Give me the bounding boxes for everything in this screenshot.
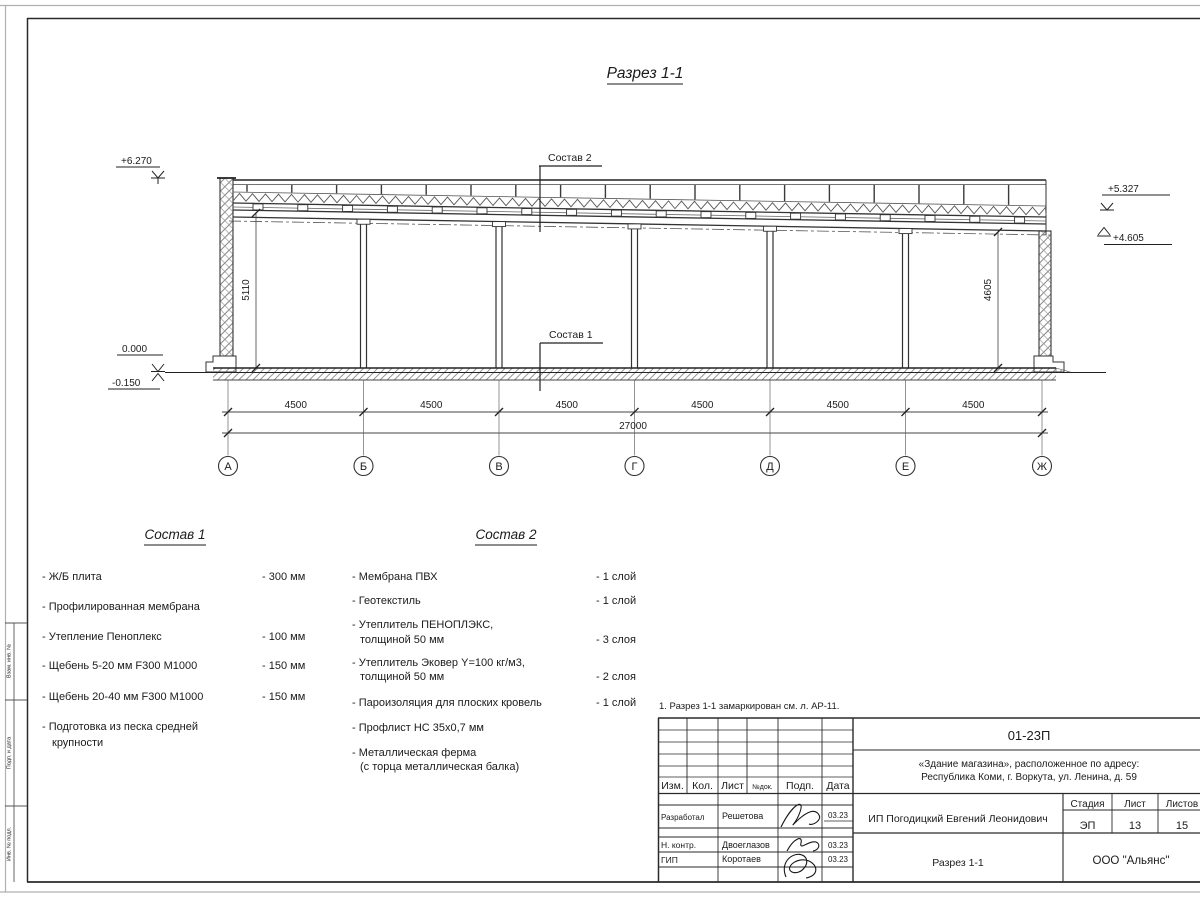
sostav2-item: - Утеплитель Эковер Y=100 кг/м3, (352, 657, 525, 669)
floor-slab (213, 368, 1056, 380)
role-gip: ГИП (661, 855, 678, 865)
col-izm: Изм. (661, 780, 684, 792)
dimension-rows (222, 380, 1048, 456)
sostav2-item: - Утеплитель ПЕНОПЛЭКС, (352, 619, 493, 631)
col-list: Лист (721, 780, 744, 792)
name-developed: Решетова (722, 811, 763, 821)
sostav2-value: - 2 слоя (596, 671, 636, 683)
axis-label-d: Д (766, 461, 774, 473)
object-address-line2: Республика Коми, г. Воркута, ул. Ленина,… (921, 771, 1137, 783)
sheet-number: 13 (1129, 820, 1141, 832)
sostav2-title: Состав 2 (476, 527, 537, 542)
sostav1-value: - 300 мм (262, 571, 305, 583)
date-ncontrol: 03.23 (828, 841, 849, 850)
axis-label-e: Е (902, 461, 909, 473)
axis-label-g: Г (632, 461, 638, 473)
axis-label-zh: Ж (1037, 461, 1047, 473)
elev-right-lower: +4.605 (1113, 233, 1144, 244)
col-data: Дата (826, 780, 849, 792)
vertical-dimensions (252, 209, 1002, 372)
sostav2-value: - 3 слоя (596, 634, 636, 646)
sheet-label: Лист (1124, 799, 1146, 810)
col-podp: Подп. (786, 780, 814, 792)
section-drawing-canvas: Взам. инв. № Подп. и дата Инв. № подл. Р… (0, 0, 1200, 900)
sostav1-value: - 150 мм (262, 691, 305, 703)
sostav1-value: - 150 мм (262, 660, 305, 672)
drawing-title: Разрез 1-1 (607, 65, 684, 82)
doc-number: 01-23П (1008, 728, 1051, 743)
drawing-sheet: Взам. инв. № Подп. и дата Инв. № подл. Р… (0, 0, 1200, 900)
client-name: ИП Погодицкий Евгений Леонидович (868, 813, 1047, 825)
axis-label-v: В (495, 461, 502, 473)
col-ndok: №док. (752, 784, 773, 791)
sostav1-item: - Профилированная мембрана (42, 601, 201, 613)
sostav2-item-line2: толщиной 50 мм (360, 671, 444, 683)
sostav2-item: - Профлист НС 35х0,7 мм (352, 722, 484, 734)
dim-height-right: 4605 (983, 278, 994, 301)
elev-right-upper: +5.327 (1108, 184, 1139, 195)
bay-dim-5: 4500 (827, 400, 850, 411)
sostav1-item: - Ж/Б плита (42, 571, 103, 583)
callout-floor-label: Состав 1 (549, 329, 593, 341)
elev-top-left: +6.270 (121, 156, 152, 167)
role-ncontrol: Н. контр. (661, 840, 696, 850)
sostav2-item: - Геотекстиль (352, 595, 421, 607)
sostav1-value: - 100 мм (262, 631, 305, 643)
bay-dim-1: 4500 (285, 400, 308, 411)
sostav2-item-line2: (с торца металлическая балка) (360, 761, 519, 773)
titleblock-drawing-name: Разрез 1-1 (932, 857, 984, 869)
left-wall (220, 178, 233, 372)
sostav1-item: - Щебень 20-40 мм F300 М1000 (42, 691, 203, 703)
signature-developed (781, 804, 820, 827)
name-ncontrol: Двоеглазов (722, 840, 770, 850)
date-developed: 03.23 (828, 811, 849, 820)
stage-value: ЭП (1080, 820, 1096, 832)
elevation-marks (108, 167, 1172, 389)
elev-zero: 0.000 (122, 344, 147, 355)
name-gip: Коротаев (722, 854, 761, 864)
interior-columns (357, 219, 912, 368)
callout-roof-label: Состав 2 (548, 152, 592, 164)
dim-total: 27000 (619, 421, 647, 432)
sostav2-item: - Пароизоляция для плоских кровель (352, 697, 542, 709)
bay-dim-4: 4500 (691, 400, 714, 411)
sostav1-item-line2: крупности (52, 737, 103, 749)
margin-label-podp: Подп. и дата (7, 736, 13, 769)
sostav2-value: - 1 слой (596, 697, 636, 709)
bay-dim-6: 4500 (962, 400, 985, 411)
role-developed: Разработал (661, 813, 705, 822)
sostav1-item: - Утепление Пеноплекс (42, 631, 162, 643)
object-address-line1: «Здание магазина», расположенное по адре… (919, 759, 1140, 770)
col-kol: Кол. (692, 780, 713, 792)
building-section (165, 178, 1106, 380)
axis-label-b: Б (360, 461, 367, 473)
date-gip: 03.23 (828, 855, 849, 864)
signature-ncontrol (787, 839, 819, 851)
bay-dim-2: 4500 (420, 400, 443, 411)
company-name: ООО "Альянс" (1093, 855, 1170, 867)
sostav2-item: - Мембрана ПВХ (352, 571, 438, 583)
sostav2-list: Состав 2 - Мембрана ПВХ - 1 слой - Геоте… (352, 527, 636, 773)
elev-minus: -0.150 (112, 378, 141, 389)
dim-height-left: 5110 (241, 279, 252, 301)
margin-label-vzam: Взам. инв. № (7, 644, 13, 678)
sheets-label: Листов (1166, 799, 1199, 810)
sostav1-title: Состав 1 (145, 527, 206, 542)
axis-label-a: А (224, 461, 232, 473)
sostav2-value: - 1 слой (596, 595, 636, 607)
sostav2-value: - 1 слой (596, 571, 636, 583)
sostav1-list: Состав 1 - Ж/Б плита - 300 мм - Профилир… (42, 527, 305, 749)
sostav2-item: - Металлическая ферма (352, 747, 477, 759)
dimension-ticks (224, 380, 1046, 456)
titleblock-texts: Изм. Кол. Лист №док. Подп. Дата Разработ… (661, 728, 1198, 869)
sheet-note: 1. Разрез 1-1 замаркирован см. л. АР-11. (659, 701, 839, 712)
axis-bubbles: А Б В Г Д Е Ж (219, 457, 1052, 476)
stage-label: Стадия (1070, 799, 1104, 810)
sostav1-item: - Щебень 5-20 мм F300 М1000 (42, 660, 197, 672)
bay-dim-3: 4500 (556, 400, 579, 411)
sostav1-item: - Подготовка из песка средней (42, 721, 198, 733)
right-wall (1039, 231, 1051, 372)
signature-gip (784, 854, 816, 878)
sostav2-item-line2: толщиной 50 мм (360, 634, 444, 646)
margin-label-inv: Инв. № подл. (7, 826, 13, 861)
callout-floor-leader (540, 343, 603, 391)
sheets-total: 15 (1176, 820, 1188, 832)
